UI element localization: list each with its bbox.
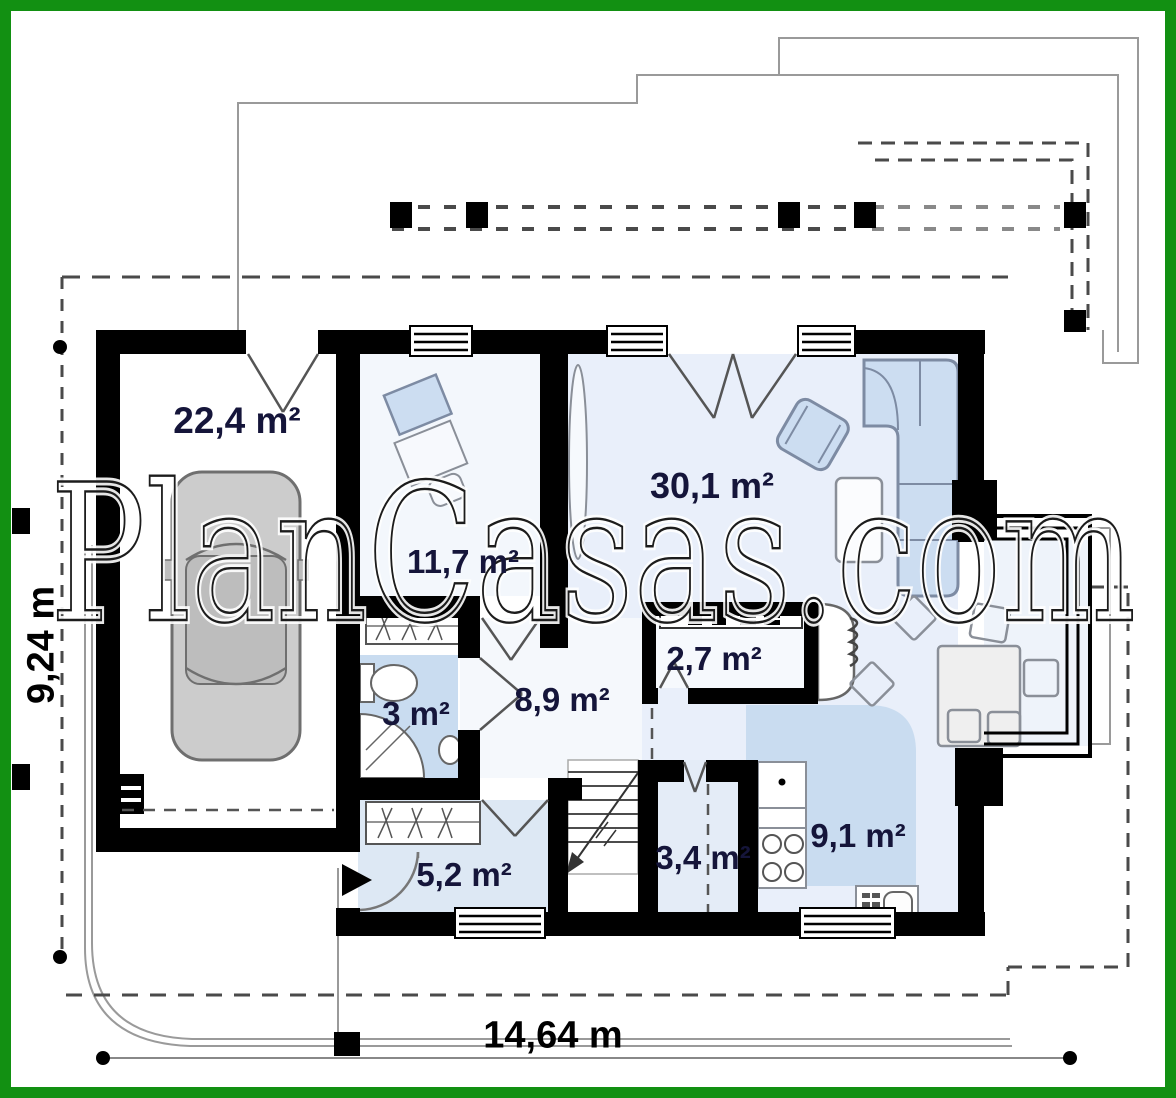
window [455, 908, 545, 938]
watermark-text: PlanCasas.com [50, 444, 1136, 665]
carport-column [12, 764, 30, 790]
living-room-area-label: 30,1 m² [650, 465, 774, 507]
porch-column [466, 202, 488, 228]
kitchen-area-label: 9,1 m² [810, 817, 905, 855]
carport-column [12, 508, 30, 534]
garage-vent [118, 774, 144, 814]
vestibule-wardrobe [366, 802, 480, 844]
bedroom-area-label: 11,7 m² [407, 543, 519, 581]
window [800, 908, 895, 938]
window [798, 326, 855, 356]
window [607, 326, 667, 356]
garage-area-label: 22,4 m² [173, 400, 301, 442]
floor-plan-drawing: PlanCasas.com PlanCasas.com [0, 0, 1176, 1098]
hall-area-label: 8,9 m² [514, 681, 609, 719]
vestibule-area-label: 5,2 m² [416, 856, 511, 894]
height-dimension-label: 9,24 m [21, 586, 64, 704]
stairs [566, 760, 640, 874]
porch-column [854, 202, 876, 228]
porch-column [390, 202, 412, 228]
pergola-column [1064, 202, 1086, 228]
terrace-column [334, 1032, 360, 1056]
washbasin [439, 736, 461, 764]
window [410, 326, 472, 356]
pantry-area-label: 2,7 m² [666, 640, 761, 678]
pergola-column [1064, 310, 1086, 332]
bathroom-area-label: 3 m² [382, 695, 450, 733]
porch-column [778, 202, 800, 228]
width-dimension-label: 14,64 m [483, 1015, 622, 1058]
floor-plan-image: PlanCasas.com PlanCasas.com 22,4 m² 11,7… [0, 0, 1176, 1098]
watermark: PlanCasas.com PlanCasas.com [50, 444, 1136, 665]
corridor-area-label: 3,4 m² [655, 839, 750, 877]
